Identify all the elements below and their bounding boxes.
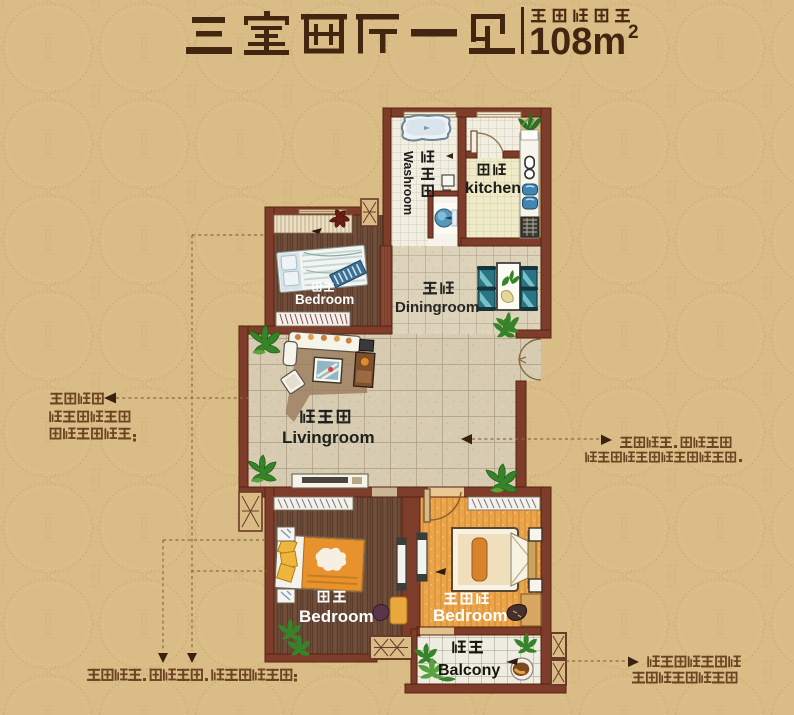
- svg-text:108m: 108m: [529, 21, 626, 63]
- svg-text:Balcony: Balcony: [438, 662, 500, 679]
- svg-text:Livingroom: Livingroom: [282, 428, 375, 447]
- svg-text:2: 2: [628, 22, 639, 43]
- svg-text:Bedroom: Bedroom: [295, 292, 354, 307]
- svg-text:Bedroom: Bedroom: [433, 606, 508, 625]
- svg-text:Washroom: Washroom: [401, 151, 415, 215]
- svg-text:Bedroom: Bedroom: [299, 607, 374, 626]
- svg-text:kitchen: kitchen: [465, 180, 521, 197]
- svg-text:Diningroom: Diningroom: [395, 299, 479, 316]
